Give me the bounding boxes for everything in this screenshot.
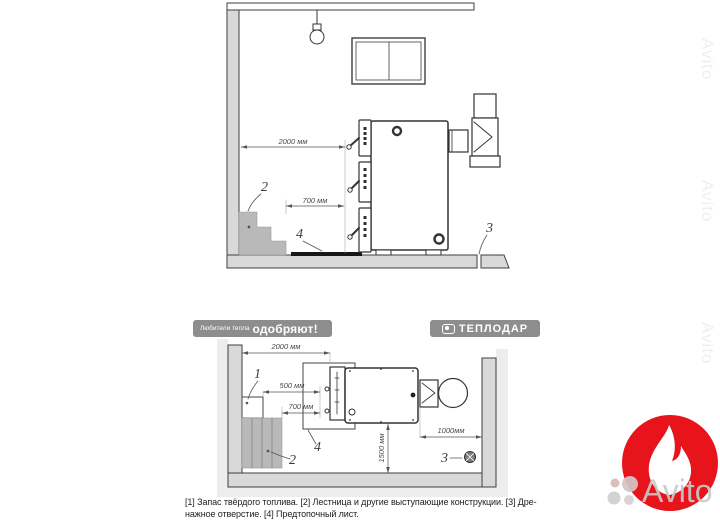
dim-text: 700 мм [289, 402, 314, 411]
dim-text: 1500 мм [377, 433, 386, 462]
side-view-drawing: 2000 мм 700 мм [227, 3, 509, 268]
listing-image: 2000 мм 700 мм [0, 0, 720, 520]
window [352, 38, 425, 84]
teplodar-logo-icon [442, 324, 455, 334]
dim-text: 500 мм [280, 381, 305, 390]
left-wall [227, 3, 239, 268]
drain-hole [465, 452, 476, 463]
boiler-installation-drawing: 2000 мм 700 мм [0, 0, 720, 520]
ceiling [227, 3, 474, 10]
legend-line-2: нажное отверстие. [4] Предтопочный лист. [185, 509, 547, 520]
dim-2000-side: 2000 мм [241, 137, 345, 149]
approval-banner: Любители тепла одобряют! [193, 320, 332, 337]
dim-700-side: 700 мм [286, 196, 344, 208]
hearth-sheet-side [291, 252, 362, 256]
dim-1000-plan: 1000мм [420, 426, 482, 439]
stairs-plan [242, 418, 282, 468]
dim-text: 2000 мм [277, 137, 307, 146]
dim-text: 2000 мм [270, 342, 300, 351]
floor-right [481, 255, 509, 268]
plan-view-drawing: 2000 мм 500 мм 700 мм 1000мм [217, 339, 508, 497]
chimney-plan [420, 379, 468, 408]
dim-1500-plan: 1500 мм [377, 424, 390, 473]
legend-line-1: [1] Запас твёрдого топлива. [2] Лестница… [185, 497, 547, 509]
plan-right-wall [482, 358, 496, 487]
label-fuel: 1 [254, 367, 261, 382]
label-stairs: 2 [261, 180, 268, 195]
dim-2000-plan: 2000 мм [242, 342, 330, 355]
label-drain: 3 [485, 221, 493, 236]
dim-text: 1000мм [438, 426, 465, 435]
lamp-icon [310, 10, 324, 44]
brand-banner: ТЕПЛОДАР [430, 320, 540, 337]
plan-left-wall [228, 345, 242, 487]
avito-edge-watermark: Avito [697, 38, 717, 81]
banner-tagline-prefix: Любители тепла [200, 325, 249, 332]
fuel-store [242, 397, 263, 418]
dim-text: 700 мм [303, 196, 328, 205]
avito-logo-dots [606, 472, 640, 512]
boiler-plan [325, 367, 418, 423]
stairs-side [239, 212, 286, 255]
label-stairs: 2 [289, 453, 296, 468]
label-drain: 3 [440, 451, 448, 466]
avito-edge-watermark: Avito [697, 322, 717, 365]
door-handles [347, 138, 359, 239]
legend-caption: [1] Запас твёрдого топлива. [2] Лестница… [185, 497, 547, 520]
floor-left [227, 255, 477, 268]
boiler-side [347, 120, 448, 255]
banner-tagline-main: одобряют! [252, 322, 317, 336]
chimney-side [449, 94, 500, 167]
avito-watermark-text: Avito [642, 472, 713, 510]
label-hearth-sheet: 4 [296, 227, 303, 242]
avito-watermark: Avito [606, 472, 713, 512]
brand-name: ТЕПЛОДАР [459, 323, 528, 335]
plan-bottom-wall [228, 473, 496, 487]
avito-edge-watermark: Avito [697, 180, 717, 223]
stairs-ref-dot [248, 226, 251, 229]
